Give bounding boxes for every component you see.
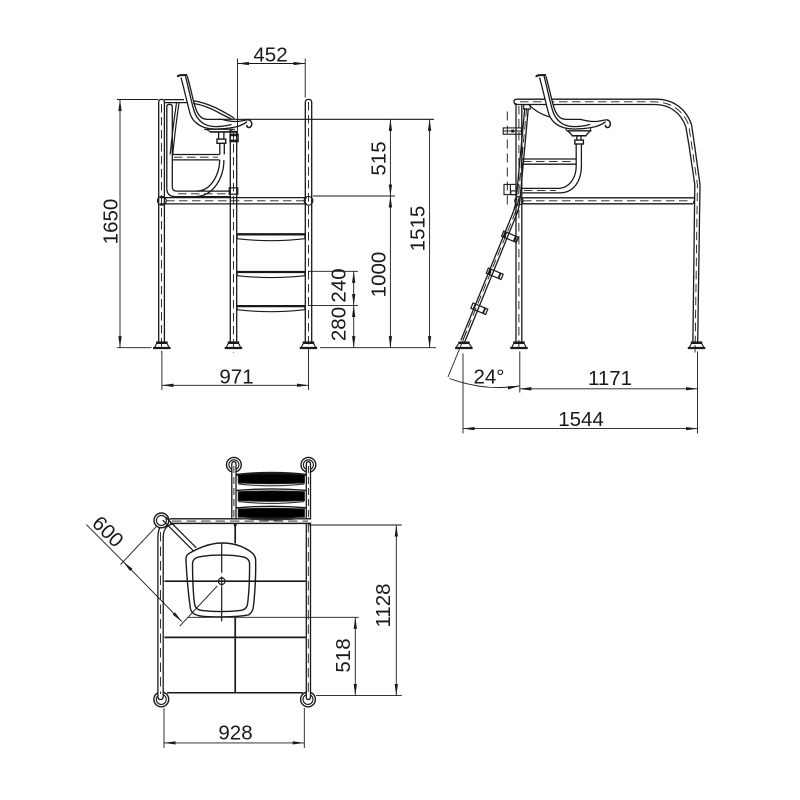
svg-text:1650: 1650 — [99, 199, 122, 245]
svg-text:971: 971 — [219, 365, 253, 388]
svg-text:600: 600 — [87, 512, 127, 552]
svg-text:280: 280 — [327, 307, 350, 341]
svg-text:518: 518 — [332, 638, 355, 672]
svg-text:1544: 1544 — [558, 408, 604, 431]
svg-text:240: 240 — [327, 268, 350, 302]
svg-text:1515: 1515 — [407, 206, 430, 252]
svg-text:24°: 24° — [473, 366, 504, 389]
svg-text:452: 452 — [253, 44, 287, 67]
svg-text:1128: 1128 — [372, 583, 395, 627]
svg-text:515: 515 — [368, 141, 391, 175]
svg-text:1171: 1171 — [588, 367, 632, 390]
svg-text:928: 928 — [218, 722, 252, 745]
svg-text:1000: 1000 — [368, 252, 391, 298]
